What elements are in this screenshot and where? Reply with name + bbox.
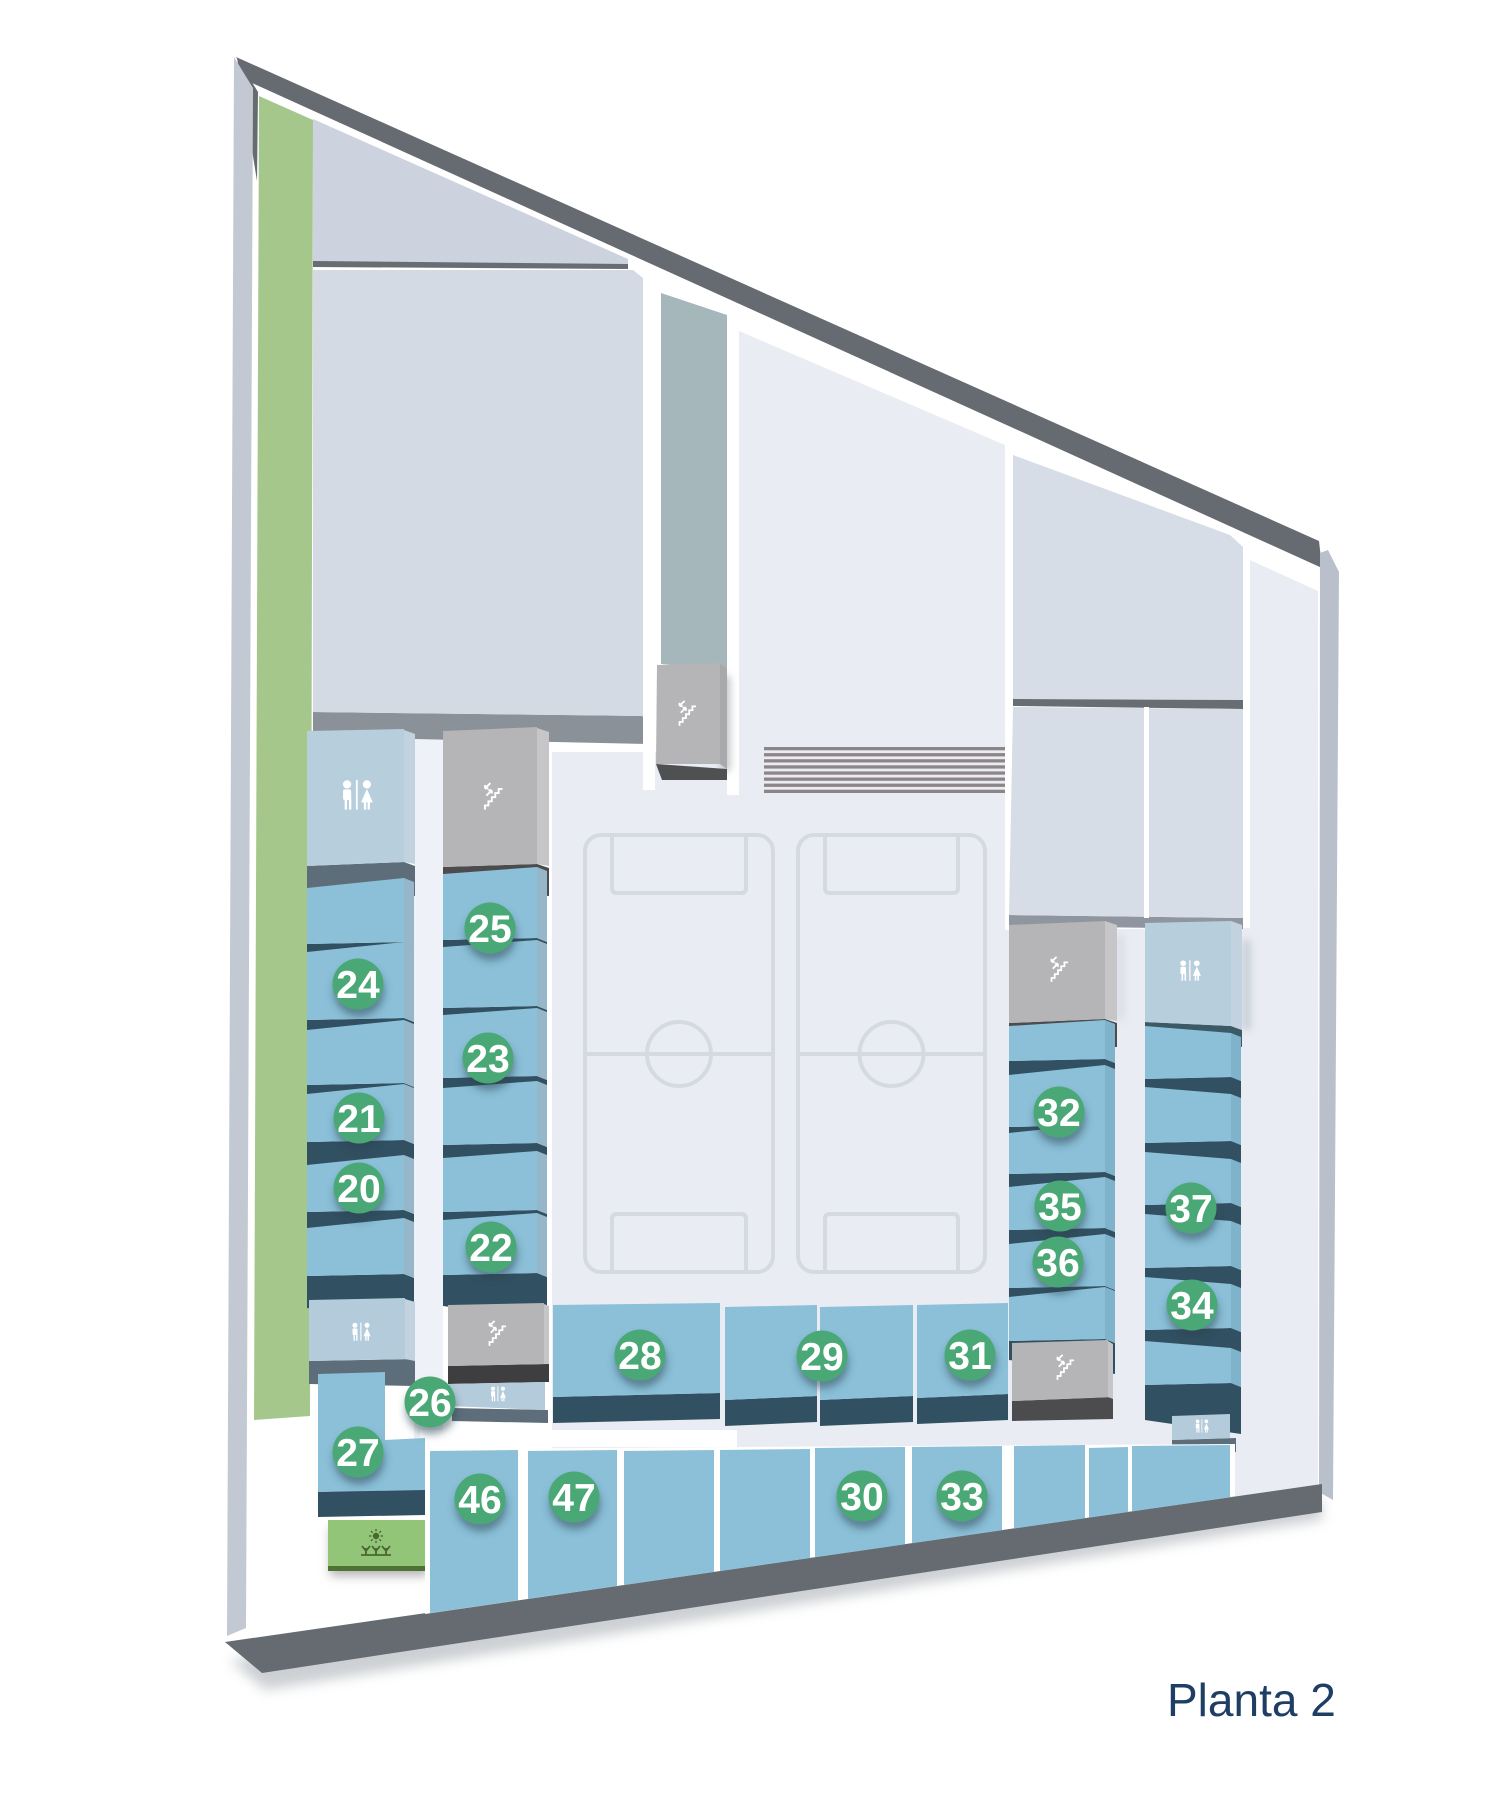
- svg-text:37: 37: [1169, 1188, 1212, 1231]
- svg-text:29: 29: [800, 1336, 843, 1379]
- svg-text:31: 31: [948, 1335, 991, 1378]
- svg-text:34: 34: [1170, 1285, 1214, 1328]
- svg-text:27: 27: [336, 1432, 379, 1475]
- svg-text:30: 30: [840, 1476, 883, 1519]
- svg-text:35: 35: [1038, 1186, 1081, 1229]
- svg-text:46: 46: [458, 1479, 501, 1522]
- svg-text:22: 22: [469, 1227, 512, 1270]
- svg-text:28: 28: [618, 1335, 661, 1378]
- svg-text:33: 33: [940, 1476, 983, 1519]
- svg-text:20: 20: [337, 1168, 380, 1211]
- svg-text:26: 26: [408, 1382, 451, 1425]
- svg-text:25: 25: [468, 908, 511, 951]
- svg-text:Planta 2: Planta 2: [1167, 1674, 1336, 1726]
- svg-text:23: 23: [466, 1038, 509, 1081]
- svg-text:21: 21: [337, 1098, 380, 1141]
- svg-text:24: 24: [336, 964, 380, 1007]
- svg-text:36: 36: [1036, 1242, 1079, 1285]
- svg-text:47: 47: [552, 1477, 595, 1520]
- svg-text:32: 32: [1037, 1092, 1080, 1135]
